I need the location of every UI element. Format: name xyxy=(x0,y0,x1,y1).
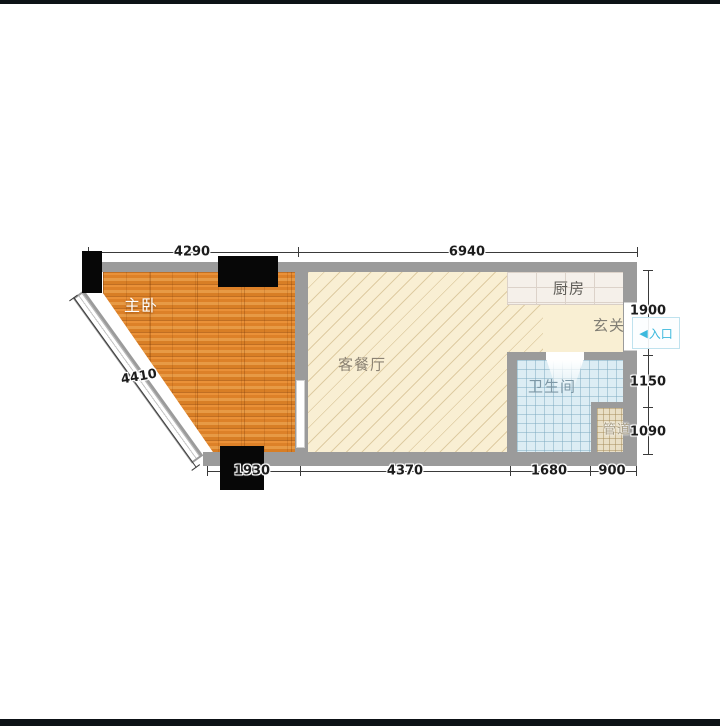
dim-label-1930: 1930 xyxy=(232,464,272,479)
room-label-entry-hall: 玄关 xyxy=(593,315,625,336)
entrance-marker: ◀ 入口 xyxy=(632,317,680,349)
room-label-duct: 管道 xyxy=(603,419,631,438)
dim-label-1090: 1090 xyxy=(628,425,668,440)
floor-plan: 主卧 客餐厅 厨房 玄关 卫生间 管道 4290 6940 1930 4370 … xyxy=(0,0,720,726)
dim-label-6940: 6940 xyxy=(447,245,487,260)
dim-tick xyxy=(510,466,511,476)
dim-tick xyxy=(191,464,200,471)
door-opening-bathroom xyxy=(546,352,584,360)
dimension-line-top xyxy=(88,252,637,253)
dim-tick xyxy=(300,466,301,476)
dim-tick xyxy=(637,247,638,257)
entrance-arrow-icon: ◀ xyxy=(639,328,647,339)
dim-label-1680: 1680 xyxy=(529,464,569,479)
door-opening-bedroom xyxy=(296,380,305,448)
dim-tick xyxy=(298,247,299,257)
dim-label-1150: 1150 xyxy=(628,375,668,390)
wall-bathroom-left xyxy=(507,352,517,452)
wall-top xyxy=(88,262,637,272)
dim-tick xyxy=(643,270,653,271)
dim-tick xyxy=(636,466,637,476)
dim-label-4290: 4290 xyxy=(172,245,212,260)
dim-tick xyxy=(207,466,208,476)
dim-tick xyxy=(643,355,653,356)
dim-tick xyxy=(643,454,653,455)
column-top-middle xyxy=(218,256,278,287)
room-label-living-dining: 客餐厅 xyxy=(338,354,386,375)
dim-label-900: 900 xyxy=(596,464,627,479)
entrance-label: 入口 xyxy=(649,325,673,342)
column-top-left xyxy=(82,251,102,293)
room-label-bedroom: 主卧 xyxy=(124,292,158,316)
dim-tick xyxy=(643,407,653,408)
room-label-kitchen: 厨房 xyxy=(553,278,585,299)
dim-tick xyxy=(590,466,591,476)
room-label-bathroom: 卫生间 xyxy=(528,376,576,397)
dim-label-4370: 4370 xyxy=(385,464,425,479)
